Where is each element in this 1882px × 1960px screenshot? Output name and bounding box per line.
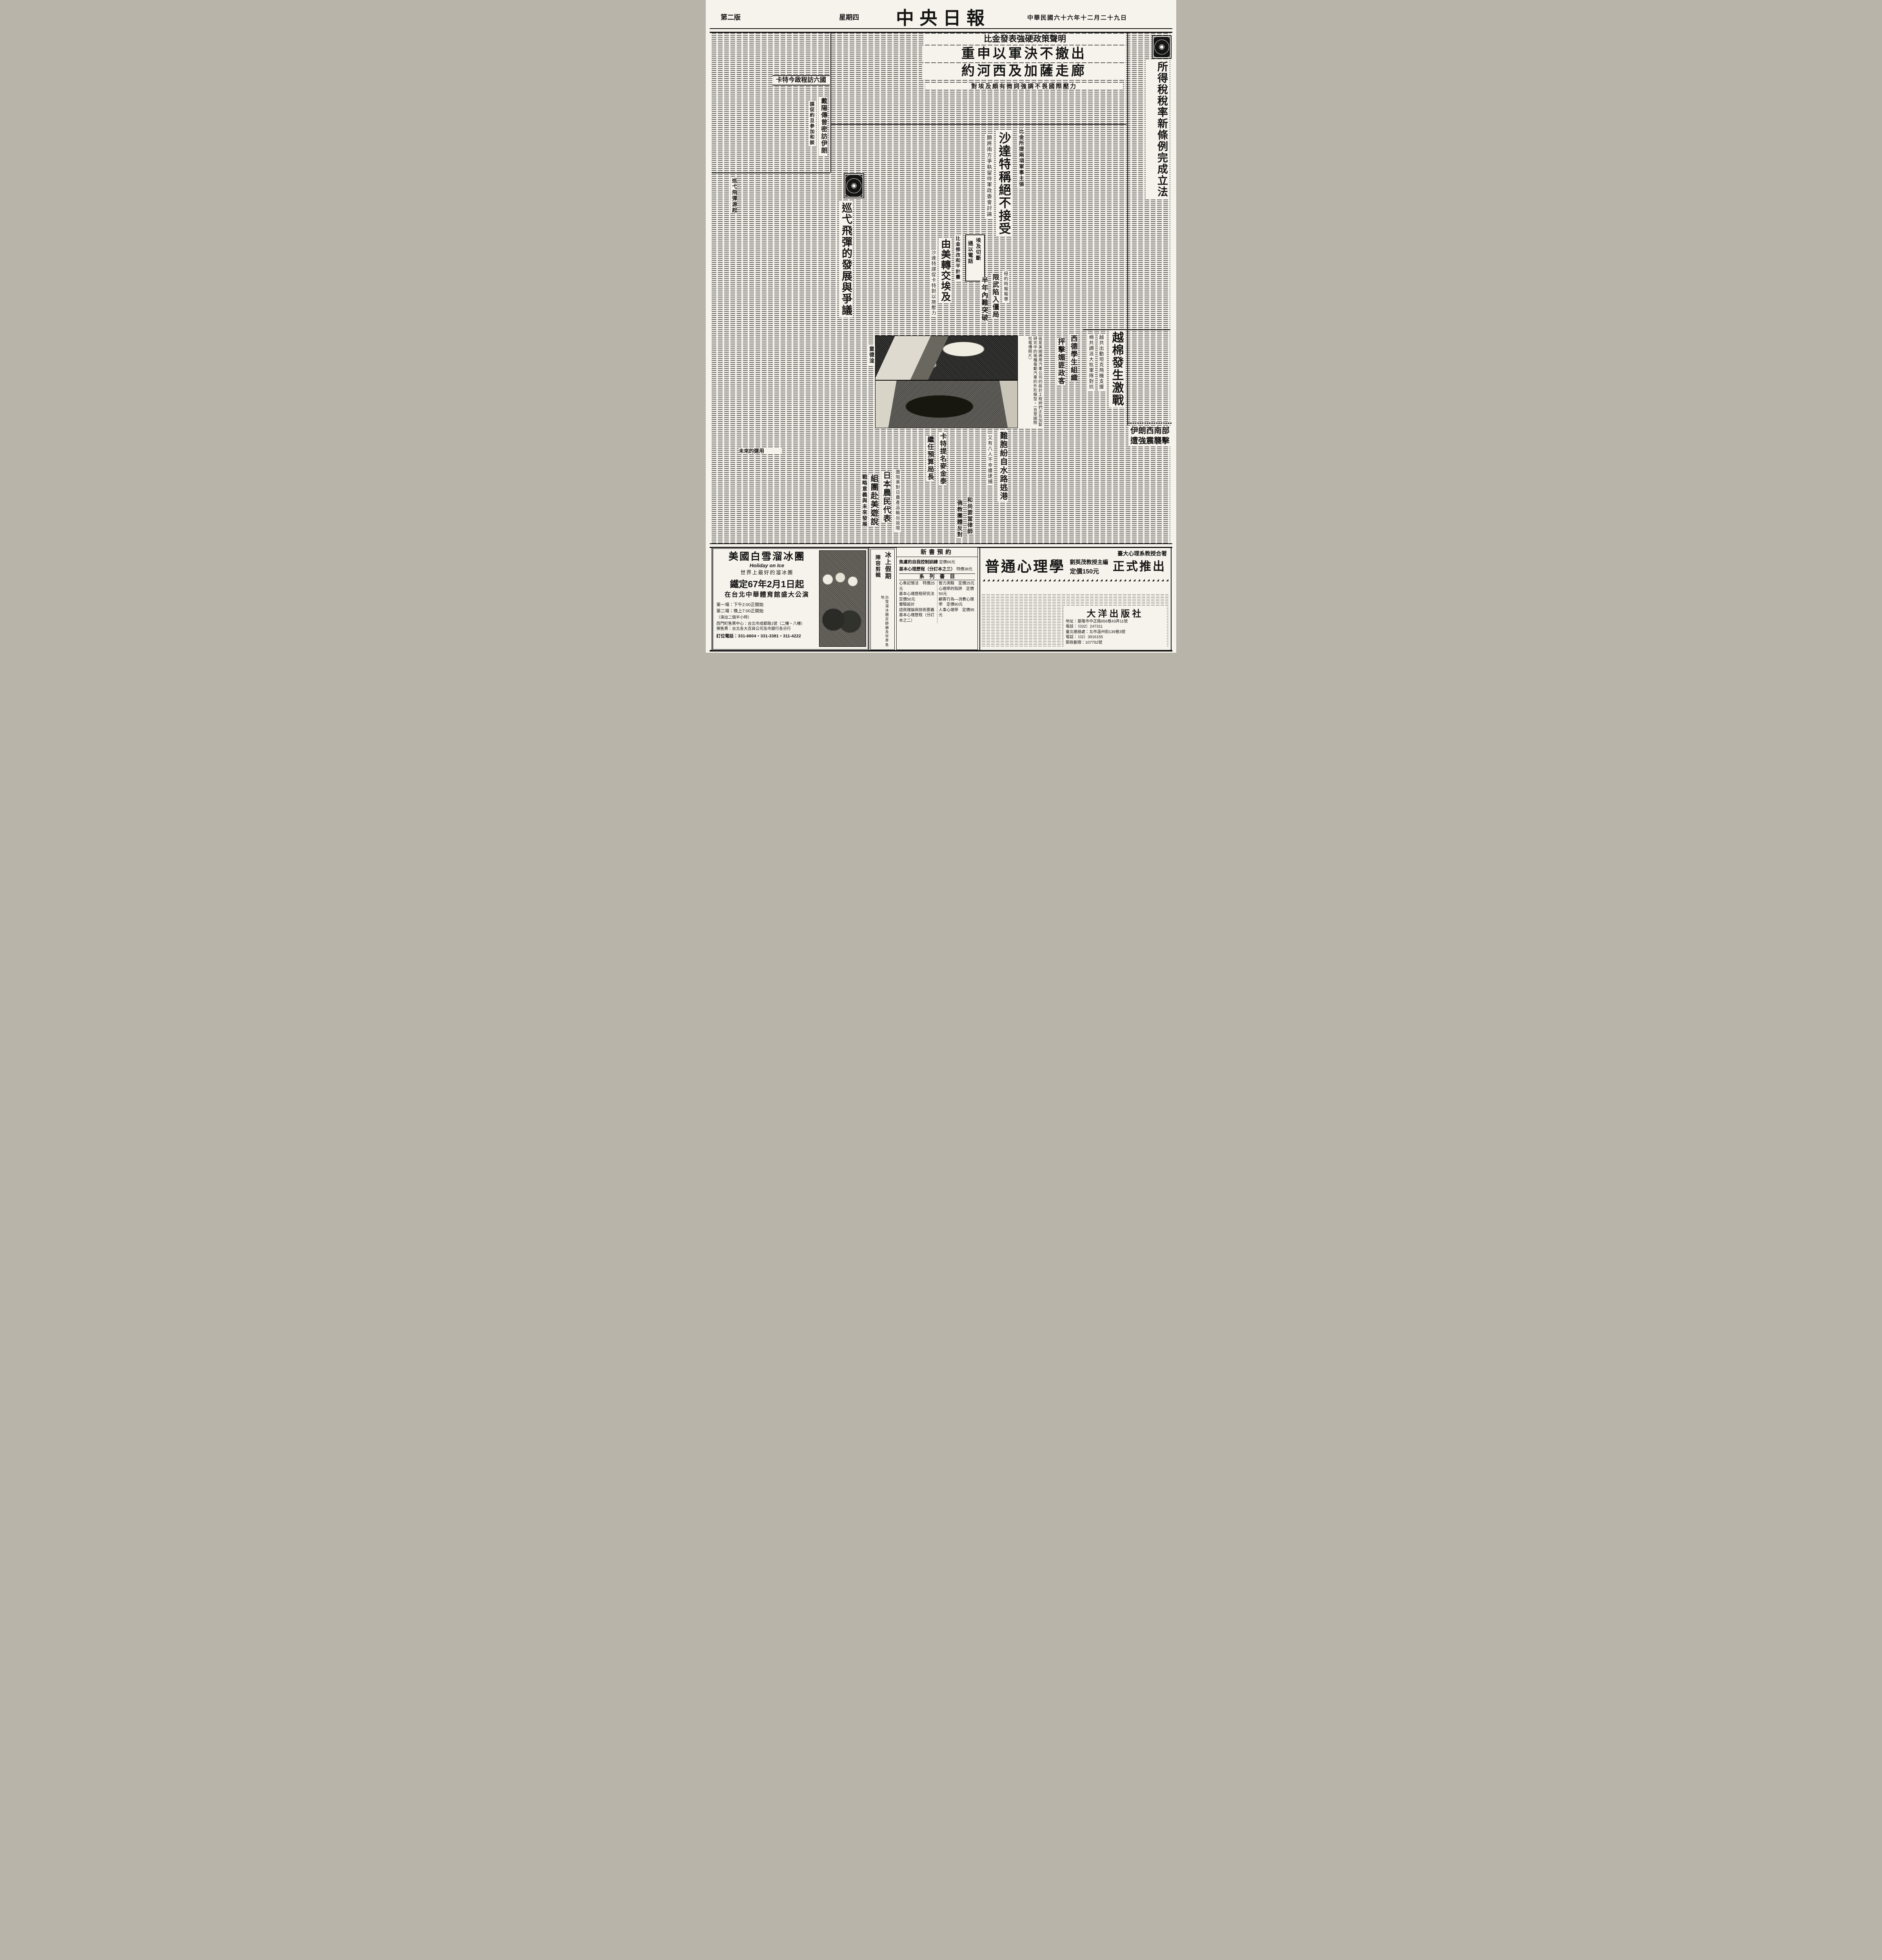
japan-farmers-line1: 日本農民代表 xyxy=(881,471,890,523)
tax-law-headline: 所得稅稅率新條例完成立法 xyxy=(1146,60,1168,199)
psych-editor: 劉英茂教授主編 xyxy=(1070,558,1108,566)
section-rule xyxy=(1083,329,1170,330)
dayan-subhead: 謀促約旦參加和談 xyxy=(808,100,816,147)
ice-show-show1: 第一場：下午2:00正開始 xyxy=(716,601,817,608)
column-rule xyxy=(830,33,831,172)
salt-subhead: 半年內難突破 xyxy=(980,277,988,321)
books-item1-price: 定價66元 xyxy=(939,560,955,564)
publisher-name: 大洋出版社 xyxy=(1066,608,1164,619)
book-list-item: 諮商理論與技術要義 xyxy=(899,608,936,613)
publisher-tel2: 電話：（02）3916155 xyxy=(1066,635,1164,640)
psych-price: 定價150元 xyxy=(1070,566,1108,575)
lineup-ad: 冰上假期 陣容剪輯 白雪溜冰團足跡遍及世界各地 xyxy=(870,549,895,650)
missile-section-3: 未來的運用 xyxy=(739,448,782,454)
phone-cut-line1: 埃及切斷 xyxy=(975,238,981,261)
missile-feature-headline: 巡弋飛彈的發展與爭議 xyxy=(839,201,853,318)
electric-car-caption: 這是美國通用汽車公司的設計工程師們正在加緊研究中的兩種電動汽車的外形模型。（合眾… xyxy=(1019,336,1043,429)
column-rule xyxy=(1127,33,1128,425)
issue-date: 中華民國六十六年十二月二十九日 xyxy=(1027,13,1172,22)
dayan-headline: 戴陽傳曾密訪伊朗 xyxy=(819,96,827,155)
refugees-subhead: 又有八人不幸遭逮捕 xyxy=(986,434,994,485)
budget-headline-line2: 繼任預算局長 xyxy=(926,436,934,481)
psych-banner: 正式推出 xyxy=(1113,560,1166,574)
lead-kicker: 比金發表強硬政策聲明 xyxy=(924,34,1126,44)
missile-section-1: 巡弋飛彈源起 xyxy=(731,178,737,213)
masthead-rule xyxy=(710,28,1172,33)
newspaper-title: 中央日報 xyxy=(884,4,1002,30)
salt-headline: 限武陷入僵局 xyxy=(991,274,999,318)
page-number-label: 第二版 xyxy=(721,12,776,22)
peace-plan-kicker: 比金修改和平計畫 xyxy=(954,235,962,281)
dotted-rule xyxy=(1128,423,1172,424)
decorative-seal-icon xyxy=(1152,35,1172,59)
psych-title: 普通心理學 xyxy=(985,559,1065,575)
publisher-address: 地址：基隆市中正路656巷43弄11號 xyxy=(1066,619,1164,624)
peace-plan-headline: 由美轉交埃及 xyxy=(939,238,952,303)
lineup-note: 白雪溜冰團足跡遍及世界各地 xyxy=(880,595,889,650)
book-list-item: 智力測驗 定價25元 xyxy=(939,581,975,586)
monks-line1: 和尚要當律師 xyxy=(967,497,973,535)
decorative-seal-icon xyxy=(844,173,864,198)
germany-headline-line2: 抨擊媚匪政客 xyxy=(1057,338,1065,385)
refugees-headline: 難胞紛自水路逃港 xyxy=(997,430,1008,502)
lead-headline-line1: 重申以軍決不撤出 xyxy=(922,46,1126,62)
skaters-photo xyxy=(819,550,866,647)
lineup-title2: 陣容剪輯 xyxy=(874,555,881,578)
carter-trip-headline: 卡特今啟程訪六國 xyxy=(772,75,830,85)
ice-show-show2: 第二場：晚上7:00正開始 xyxy=(716,608,817,614)
electric-car-photo-top xyxy=(875,336,1018,380)
vietnam-headline: 越棉發生激戰 xyxy=(1109,330,1124,408)
budget-headline-line1: 卡特提名麥金泰 xyxy=(939,433,946,485)
books-item2: 基本心理歷程（分訂本之三） xyxy=(899,567,955,572)
sadat-headline: 沙達特稱絕不接受 xyxy=(996,130,1012,237)
publisher-liaison: 臺北連絡處：北市溫州街139巷3號 xyxy=(1066,630,1164,635)
vietnam-subhead-1: 越共出動坦克飛機支援 xyxy=(1098,334,1105,390)
japan-farmers-line2: 組團赴美遊說 xyxy=(869,474,878,526)
missile-feature-byline: 童德淦 xyxy=(867,345,876,365)
ice-show-ad: 美國白雪溜冰團 Holiday on Ice 世界上最好的溜冰團 鐵定67年2月… xyxy=(712,547,869,651)
salt-kicker: 紐約時報報導 xyxy=(1002,270,1009,303)
ice-show-duration: （演出二個半小時） xyxy=(716,614,817,620)
lineup-title1: 冰上假期 xyxy=(883,552,890,580)
books-ad: 新書預約 焦慮的自我控制訓練 定價66元 基本心理歷程（分訂本之三） 特價38元… xyxy=(896,547,978,650)
book-list-item: 實驗設計 xyxy=(899,602,936,608)
sadat-subhead: 願將兩方爭執留待軍政委會討論 xyxy=(985,134,993,218)
book-list-item: 心象記憶法 特價25元 xyxy=(899,581,936,592)
section-rule xyxy=(712,172,830,173)
ice-show-venue: 在台北中華體育館盛大公演 xyxy=(716,592,817,599)
ice-show-title: 美國白雪溜冰團 xyxy=(716,551,817,563)
publisher-postal: 郵政劃撥：107752號 xyxy=(1066,640,1164,646)
books-header: 新書預約 xyxy=(897,548,977,557)
zigzag-divider xyxy=(980,578,1171,581)
psychology-ad: 臺大心理系教授合著 普通心理學 劉英茂教授主編 定價150元 正式推出 大洋出版… xyxy=(979,547,1172,651)
vietnam-subhead-2: 棉共調派大批軍隊對抗 xyxy=(1088,334,1095,390)
book-list-item: 顧客行為—消費心理學 定價90元 xyxy=(939,597,975,608)
japan-farmers-kicker: 圍阻美對日農產品輸出設限 xyxy=(894,469,901,532)
lead-subhead: 對埃及頗有微詞強調不畏國際壓力 xyxy=(925,83,1123,90)
books-item1: 焦慮的自我控制訓練 xyxy=(899,560,938,564)
ice-show-date: 鐵定67年2月1日起 xyxy=(716,579,817,589)
books-item2-price: 特價38元 xyxy=(956,567,972,572)
weekday-label: 星期四 xyxy=(839,12,882,22)
books-series-header: 系 列 書 目 xyxy=(899,573,975,580)
sadat-kicker: 比金所提兩項軍事主張 xyxy=(1017,128,1025,188)
book-list-item: 心理學的陷阱 定價50元 xyxy=(939,586,975,597)
peace-plan-subhead: 沙達特謀促卡特對以施壓力 xyxy=(930,249,937,317)
lead-headline-line2: 約河西及加薩走廊 xyxy=(922,64,1126,79)
monks-line2: 佛教團體反對 xyxy=(957,500,963,538)
electric-car-photo-bottom xyxy=(875,380,1018,428)
iran-quake-line1: 伊朗西南部 xyxy=(1128,426,1172,436)
ice-show-tagline: 世界上最好的溜冰團 xyxy=(716,568,817,576)
page-bottom-rule xyxy=(710,650,1172,652)
ice-show-presale: 預售票：台北各大百貨公司及市銀行各分行 xyxy=(716,626,817,632)
germany-headline-line1: 西德學生組織 xyxy=(1070,335,1078,382)
phone-cut-line2: 通以電話 xyxy=(967,241,973,264)
book-list-item: 基本心理歷程研究法 定價50元 xyxy=(899,592,936,602)
publisher-tel1: 電話：（032）247311 xyxy=(1066,624,1164,630)
section-rule xyxy=(831,124,1126,125)
ice-show-box-office: 西門町售票中心：台北市成都路1號（二樓・八樓） xyxy=(716,621,817,627)
missile-section-2: 戰略意義與未來發展 xyxy=(861,474,867,527)
iran-quake-line2: 遭強震襲擊 xyxy=(1128,437,1172,446)
book-list-item: 人事心理學 定價95元 xyxy=(939,608,975,618)
ice-show-subtitle-en: Holiday on Ice xyxy=(716,563,817,568)
book-list-item: 基本心理歷程（分訂本之二） xyxy=(899,613,936,623)
ice-show-phone: 訂位電話：331-6604・331-3381・311-4222 xyxy=(716,633,817,639)
psych-kicker: 臺大心理系教授合著 xyxy=(980,548,1171,557)
newspaper-page: 第二版 星期四 中央日報 中華民國六十六年十二月二十九日 所得稅稅率新條例完成立… xyxy=(706,0,1176,653)
